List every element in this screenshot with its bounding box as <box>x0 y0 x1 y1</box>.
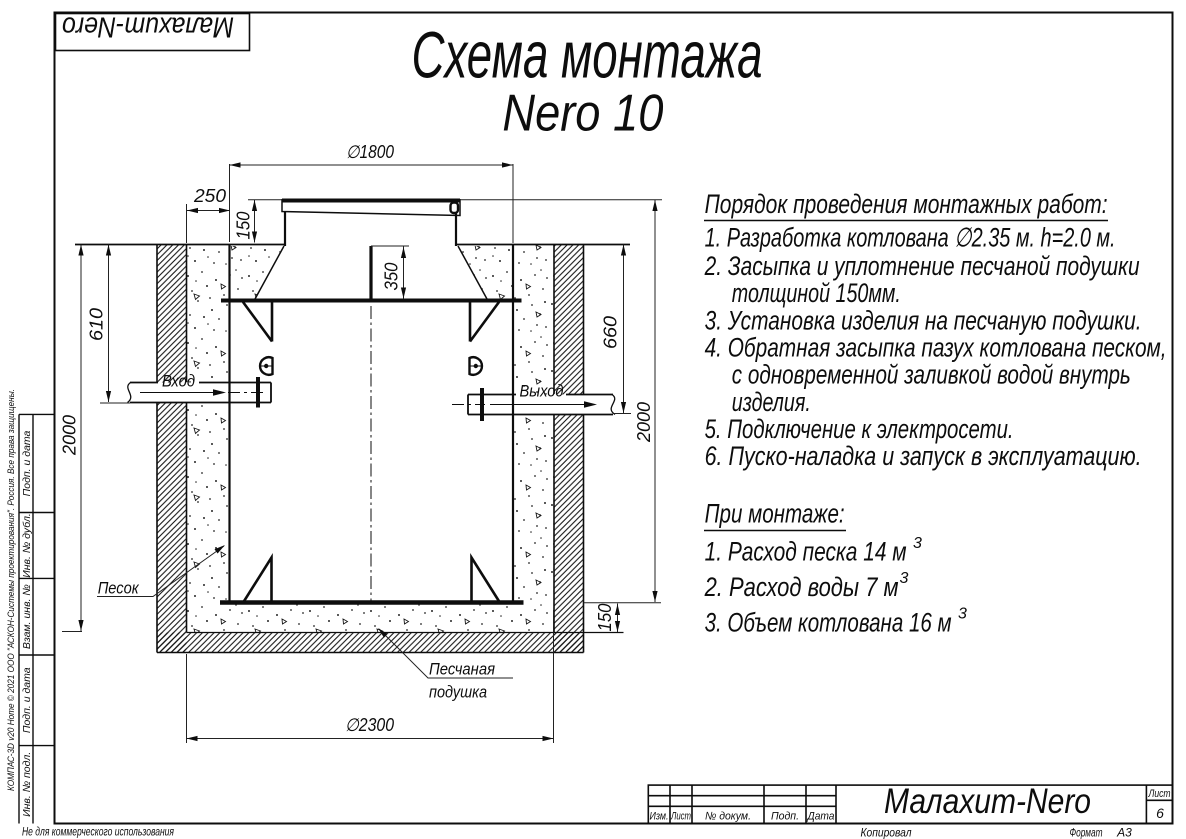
svg-text:3. Объем котлована 16 м: 3. Объем котлована 16 м <box>705 607 952 637</box>
svg-text:КОМПАС-3D v20 Home © 2021 ООО: КОМПАС-3D v20 Home © 2021 ООО "АСКОН-Сис… <box>6 389 17 791</box>
svg-text:250: 250 <box>193 186 226 206</box>
svg-text:660: 660 <box>601 316 621 349</box>
svg-text:изделия.: изделия. <box>732 387 811 417</box>
svg-text:3: 3 <box>900 570 909 587</box>
svg-text:А3: А3 <box>1116 826 1132 839</box>
svg-text:№ докум.: № докум. <box>705 811 751 823</box>
svg-text:2. Засыпка и уплотнение песчан: 2. Засыпка и уплотнение песчаной подушки <box>704 251 1140 281</box>
svg-text:3: 3 <box>958 606 967 623</box>
svg-text:Подп. и дата: Подп. и дата <box>21 430 33 496</box>
svg-text:Инв. № подл.: Инв. № подл. <box>21 752 33 817</box>
svg-text:Лист: Лист <box>670 811 691 823</box>
svg-text:толщиной 150мм.: толщиной 150мм. <box>732 278 901 308</box>
svg-text:Выход: Выход <box>520 382 564 401</box>
svg-text:5. Подключение к электросети.: 5. Подключение к электросети. <box>705 414 1014 444</box>
svg-text:150: 150 <box>595 604 615 632</box>
svg-text:Формат: Формат <box>1070 826 1103 839</box>
svg-text:∅2300: ∅2300 <box>345 715 394 735</box>
svg-text:Не для коммерческого использов: Не для коммерческого использования <box>22 827 174 839</box>
svg-text:150: 150 <box>234 212 254 240</box>
svg-text:Изм.: Изм. <box>650 811 669 823</box>
svg-text:6. Пуско-наладка и запуск в эк: 6. Пуско-наладка и запуск в эксплуатацию… <box>705 441 1142 471</box>
svg-text:Дата: Дата <box>806 811 835 823</box>
svg-text:Инв. № дубл.: Инв. № дубл. <box>21 513 33 578</box>
svg-text:Копировал: Копировал <box>861 826 912 839</box>
svg-text:6: 6 <box>1156 805 1164 821</box>
svg-text:Песок: Песок <box>98 579 140 598</box>
svg-text:Вход: Вход <box>162 372 195 391</box>
svg-text:Порядок проведения монтажных р: Порядок проведения монтажных работ: <box>705 189 1108 219</box>
svg-text:При монтаже:: При монтаже: <box>705 499 845 529</box>
svg-text:Взам. инв. №: Взам. инв. № <box>21 584 33 649</box>
svg-text:подушка: подушка <box>429 683 487 702</box>
svg-text:3. Установка изделия на песчан: 3. Установка изделия на песчаную подушки… <box>705 305 1142 335</box>
svg-text:Подп. и дата: Подп. и дата <box>21 667 33 733</box>
svg-text:610: 610 <box>87 308 107 341</box>
svg-text:2. Расход воды 7 м: 2. Расход воды 7 м <box>704 572 899 602</box>
svg-text:2000: 2000 <box>60 415 80 456</box>
svg-text:1. Расход песка 14 м: 1. Расход песка 14 м <box>705 536 907 566</box>
svg-text:Лист: Лист <box>1148 788 1171 800</box>
svg-text:4. Обратная засыпка пазух котл: 4. Обратная засыпка пазух котлована песк… <box>705 333 1167 363</box>
svg-text:Малахит-Nero: Малахит-Nero <box>62 11 234 43</box>
svg-text:1. Разработка котлована ∅2.35: 1. Разработка котлована ∅2.35 м. h=2.0 м… <box>705 223 1116 253</box>
svg-text:Nero 10: Nero 10 <box>502 85 663 143</box>
svg-text:с одновременной заливкой водой: с одновременной заливкой водой внутрь <box>732 360 1131 390</box>
svg-text:2000: 2000 <box>634 402 654 443</box>
svg-text:Подп.: Подп. <box>771 811 799 823</box>
svg-text:350: 350 <box>382 263 402 291</box>
svg-text:Схема монтажа: Схема монтажа <box>412 18 763 92</box>
svg-text:∅1800: ∅1800 <box>346 142 394 162</box>
svg-text:Песчаная: Песчаная <box>429 660 495 679</box>
svg-text:Малахит-Nero: Малахит-Nero <box>884 782 1091 821</box>
svg-text:3: 3 <box>913 535 922 552</box>
